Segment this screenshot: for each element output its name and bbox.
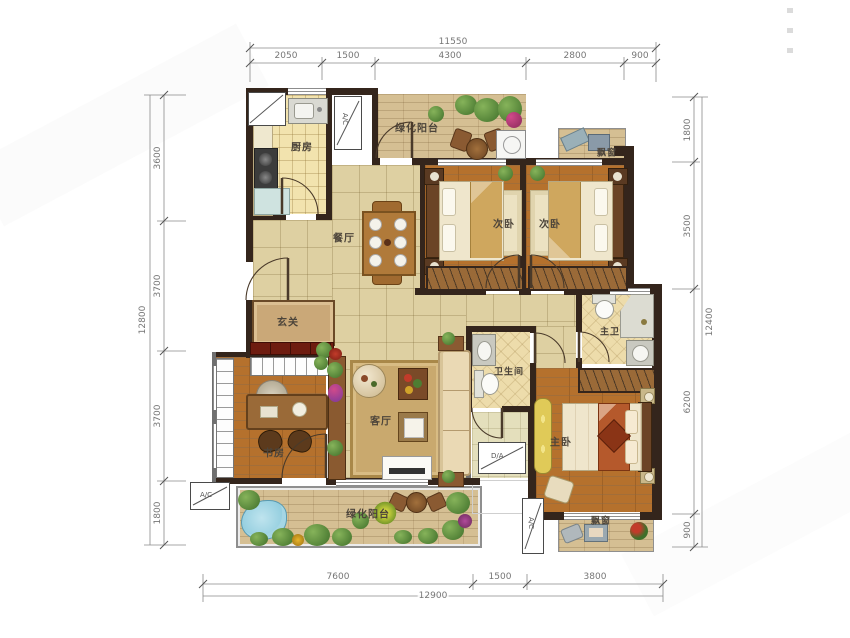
dim-bottom-1: 1500 [488,572,513,582]
dim-top-3: 2800 [563,51,588,61]
dim-right-1: 3500 [683,215,693,238]
dim-right-2: 6200 [683,391,693,414]
dimension-lines [144,42,708,602]
dim-right-total: 12400 [705,308,715,337]
dim-left-0: 3600 [153,147,163,170]
dim-top-4: 900 [630,51,649,61]
dimension-ticks [160,44,698,588]
dim-top-total: 11550 [438,37,469,47]
dim-bottom-total: 12900 [418,591,449,601]
dim-top-2: 4300 [438,51,463,61]
dim-top-1: 1500 [336,51,361,61]
dim-right-3: 900 [683,521,693,538]
dim-left-1: 3700 [153,275,163,298]
dim-bottom-2: 3800 [583,572,608,582]
door-arcs [246,122,609,478]
dim-right-0: 1800 [683,119,693,142]
plan-linework [0,0,850,638]
dim-bottom-0: 7600 [326,572,351,582]
floor-plan: A/C [0,0,850,638]
dim-left-total: 12800 [138,306,148,335]
dim-left-2: 3700 [153,405,163,428]
dim-left-3: 1800 [153,502,163,525]
dim-top-0: 2050 [274,51,299,61]
